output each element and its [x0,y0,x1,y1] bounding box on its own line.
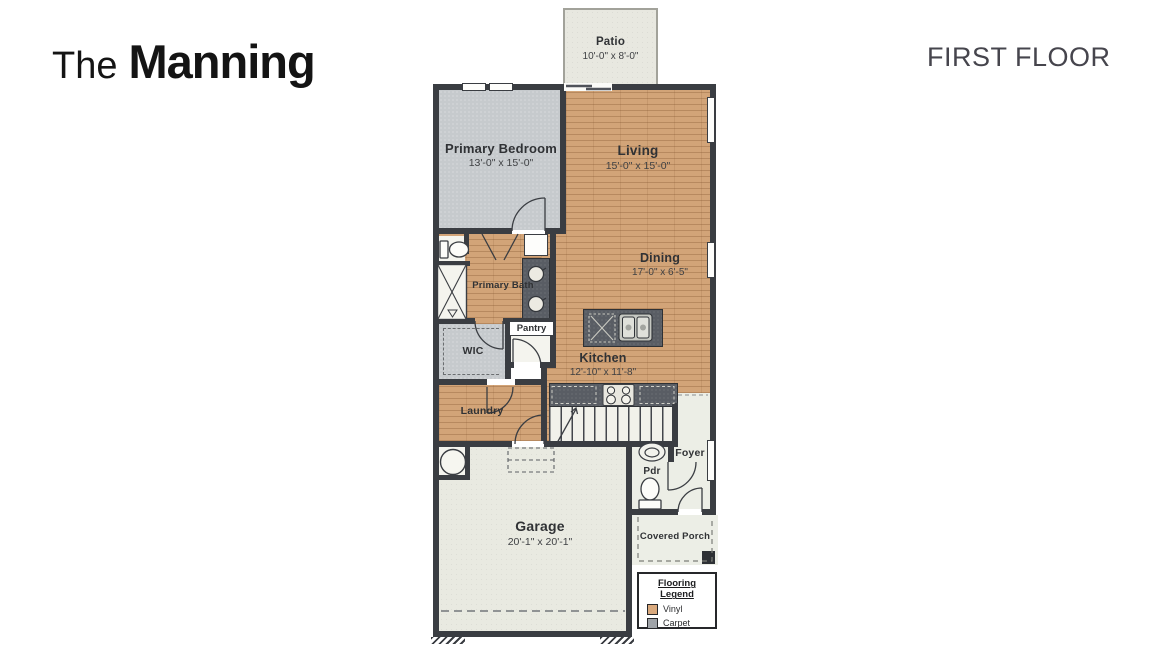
room-living-dining [566,90,710,393]
room-name: Primary Bedroom [441,141,561,156]
wall [672,403,678,447]
room-name: Garage [478,518,602,535]
covered-porch-label: Covered Porch [633,531,717,542]
room-dims: 17'-0" x 6'-5" [605,267,715,279]
dining-label: Dining 17'-0" x 6'-5" [605,251,715,279]
pdr-label: Pdr [636,466,668,478]
wall [437,475,470,480]
kitchen-island [583,309,663,347]
room-name: Kitchen [548,351,658,366]
primary-bedroom-label: Primary Bedroom 13'-0" x 15'-0" [441,141,561,170]
wall [550,234,556,368]
wall [433,84,439,637]
wall [541,368,547,441]
wall [433,379,487,385]
toilet-nook-floor [439,236,465,261]
kitchen-counter [549,383,678,407]
carpet-swatch-icon [647,618,658,629]
pantry-label: Pantry [509,321,554,336]
foyer-label: Foyer [666,447,714,459]
living-label: Living 15'-0" x 15'-0" [583,143,693,172]
room-name: Foyer [666,447,714,459]
foundation-hatch [600,637,634,644]
room-name: Covered Porch [633,531,717,542]
staircase [549,407,672,443]
patio-door [564,83,612,91]
primary-bath-label: Primary Bath [471,280,535,291]
wall [508,362,514,368]
page: The Manning FIRST FLOOR [0,0,1150,651]
kitchen-label: Kitchen 12'-10" x 11'-8" [548,351,658,379]
room-name: Living [583,143,693,159]
legend-item-vinyl: Vinyl [647,604,715,615]
room-name: Patio [563,36,658,50]
room-dims: 10'-0" x 8'-0" [563,51,658,63]
room-dims: 12'-10" x 11'-8" [548,367,658,379]
garage-label: Garage 20'-1" x 20'-1" [478,518,602,548]
room-name: Laundry [446,405,518,417]
legend-item-carpet: Carpet [647,618,715,629]
room-name: Dining [605,251,715,266]
wall [433,318,475,324]
room-dims: 13'-0" x 15'-0" [441,157,561,169]
wall [465,447,470,477]
legend-title: Flooring Legend [653,578,701,601]
flooring-legend: Flooring Legend Vinyl Carpet [637,572,717,629]
window [707,97,715,143]
wall [544,441,676,447]
room-name: Pantry [517,323,547,334]
wall [433,441,512,447]
room-dims: 15'-0" x 15'-0" [583,160,693,172]
wall [515,379,541,385]
legend-item-label: Vinyl [663,604,682,614]
wall [626,441,632,637]
foundation-hatch [431,637,465,644]
wall [437,261,470,266]
room-name: WIC [448,345,498,357]
wall [433,631,632,637]
wall [464,234,469,254]
room-dims: 20'-1" x 20'-1" [478,536,602,548]
vinyl-swatch-icon [647,604,658,615]
window [462,83,486,91]
porch-column [702,551,715,564]
wic-label: WIC [448,345,498,357]
laundry-label: Laundry [446,405,518,417]
floor-plan: Patio 10'-0" x 8'-0" Primary Bedroom 13'… [0,0,1150,651]
legend-item-label: Carpet [663,618,690,628]
room-name: Pdr [636,466,668,478]
patio-label: Patio 10'-0" x 8'-0" [563,36,658,62]
wall [433,228,512,234]
window [489,83,513,91]
linen-closet [524,234,548,256]
room-name: Primary Bath [471,280,535,291]
wall [626,509,678,515]
wall [702,509,710,515]
